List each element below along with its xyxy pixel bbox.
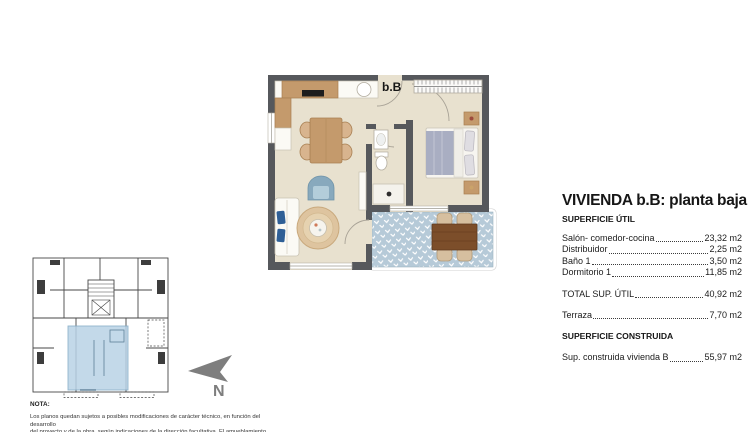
dotted-leader: [592, 264, 709, 265]
page: b.B: [0, 0, 756, 432]
cooktop: [302, 90, 324, 97]
terrace-table: [432, 224, 477, 250]
page-title: VIVIENDA b.B: planta baja: [562, 192, 742, 210]
rug: [297, 207, 339, 249]
floor-plan-drawing: b.B: [256, 60, 510, 296]
key-plan-highlighted-unit: [68, 326, 128, 390]
area-rows: Salón- comedor-cocina 23,32 m2 Distribui…: [562, 233, 742, 364]
note-line: Los planos quedan sujetos a posibles mod…: [30, 414, 272, 429]
north-arrow: N: [186, 346, 240, 400]
kitchen-sink: [357, 83, 371, 97]
dotted-leader: [656, 241, 704, 242]
area-row-terraza: Terraza 7,70 m2: [562, 310, 742, 321]
area-table: VIVIENDA b.B: planta baja SUPERFICIE ÚTI…: [562, 192, 742, 364]
area-row-salon: Salón- comedor-cocina 23,32 m2: [562, 233, 742, 244]
note-header: NOTA:: [30, 401, 272, 408]
bed: [426, 128, 478, 178]
north-label: N: [213, 383, 225, 400]
tv-console: [359, 172, 366, 210]
area-row-total: TOTAL SUP. ÚTIL 40,92 m2: [562, 289, 742, 300]
sofa: [275, 198, 299, 256]
note: NOTA: Los planos quedan sujetos a posibl…: [30, 401, 272, 432]
sofa-pillow: [276, 211, 285, 225]
area-row-distribuidor: Distribuidor 2,25 m2: [562, 244, 742, 255]
sofa-pillow: [276, 229, 285, 243]
area-row-construida: Sup. construida vivienda B 55,97 m2: [562, 352, 742, 363]
key-plan: [28, 252, 174, 399]
dotted-leader: [670, 361, 704, 362]
superficie-util-header: SUPERFICIE ÚTIL: [562, 214, 742, 224]
area-row-bano: Baño 1 3,50 m2: [562, 256, 742, 267]
dotted-leader: [609, 253, 709, 254]
toilet: [376, 156, 387, 170]
dotted-leader: [593, 318, 708, 319]
dotted-leader: [612, 276, 704, 277]
armchair: [308, 176, 334, 200]
area-row-dormitorio: Dormitorio 1 11,85 m2: [562, 267, 742, 278]
north-arrow-icon: [188, 355, 232, 382]
coffee-table: [310, 220, 327, 237]
superficie-construida-header: SUPERFICIE CONSTRUIDA: [562, 331, 742, 341]
dotted-leader: [635, 297, 703, 298]
unit-label: b.B: [382, 80, 402, 94]
floor-plan: b.B: [256, 60, 510, 296]
